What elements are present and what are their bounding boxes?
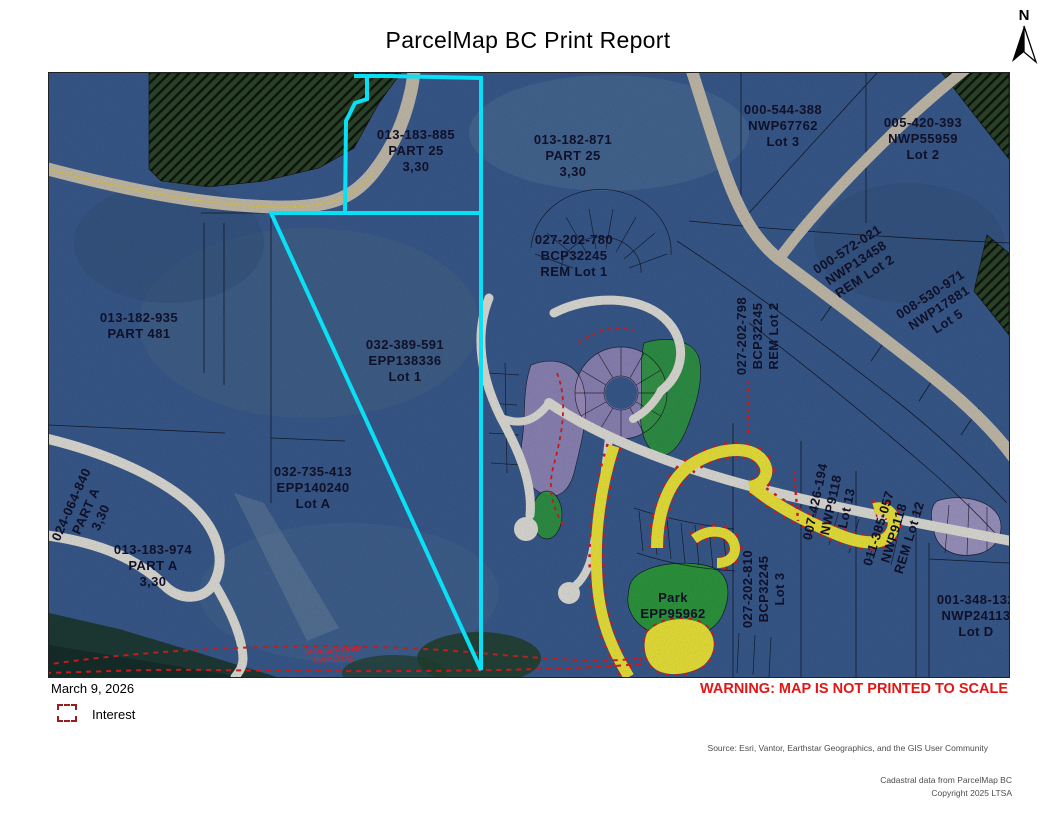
parcel-label-011-385-057: 011-385-057NWP9118REM Lot 12 — [860, 489, 928, 577]
parcel-label-027-202-810: 027-202-810BCP32245Lot 3 — [740, 550, 788, 628]
print-report-page: ParcelMap BC Print Report N — [0, 0, 1056, 816]
map-viewport: 013-183-885PART 253,30013-182-871PART 25… — [48, 72, 1010, 678]
copyright-line-1: Cadastral data from ParcelMap BC — [880, 774, 1012, 787]
parcel-label-032-735-413: 032-735-413EPP140240Lot A — [274, 464, 352, 512]
parcel-label-013-182-935: 013-182-935PART 481 — [100, 310, 178, 342]
imagery-source-credit: Source: Esri, Vantor, Earthstar Geograph… — [708, 743, 988, 753]
parcel-label-000-544-388: 000-544-388NWP67762Lot 3 — [744, 102, 822, 150]
parcel-label-013-182-871: 013-182-871PART 253,30 — [534, 132, 612, 180]
north-label: N — [1019, 7, 1030, 24]
parcel-label-024-064-840: 024-064-840PART A3,30 — [49, 466, 124, 557]
interest-legend-label: Interest — [92, 707, 135, 722]
parcel-label-000-572-021: 000-572-021NWP13458REM Lot 2 — [810, 222, 901, 304]
parcel-label-001-348-132: 001-348-132NWP24113Lot D — [937, 592, 1009, 640]
parcel-label-027-202-780: 027-202-780BCP32245REM Lot 1 — [535, 232, 613, 280]
parcel-label-008-530-971: 008-530-971NWP17881Lot 5 — [893, 267, 984, 349]
page-title: ParcelMap BC Print Report — [0, 27, 1056, 54]
parcel-label-027-202-798: 027-202-798BCP32245REM Lot 2 — [734, 297, 782, 375]
copyright-credit: Cadastral data from ParcelMap BC Copyrig… — [880, 774, 1012, 800]
parcel-label-park-epp95962: ParkEPP95962 — [640, 590, 705, 622]
parcel-label-007-426-194: 007-426-194NWP9118Lot 13 — [800, 462, 863, 548]
copyright-line-2: Copyright 2025 LTSA — [880, 787, 1012, 800]
parcel-label-013-183-974: 013-183-974PART A3,30 — [114, 542, 192, 590]
scale-warning: WARNING: MAP IS NOT PRINTED TO SCALE — [700, 681, 1008, 697]
parcel-label-statutory-row: Statutory ROWNWP13841 — [304, 645, 362, 666]
north-arrow-icon: N — [1004, 6, 1044, 68]
report-date: March 9, 2026 — [51, 681, 134, 696]
interest-legend-icon — [57, 704, 77, 722]
parcel-label-013-183-885: 013-183-885PART 253,30 — [377, 127, 455, 175]
map-labels-layer: 013-183-885PART 253,30013-182-871PART 25… — [49, 73, 1009, 677]
parcel-label-032-389-591: 032-389-591EPP138336Lot 1 — [366, 337, 444, 385]
parcel-label-005-420-393: 005-420-393NWP55959Lot 2 — [884, 115, 962, 163]
